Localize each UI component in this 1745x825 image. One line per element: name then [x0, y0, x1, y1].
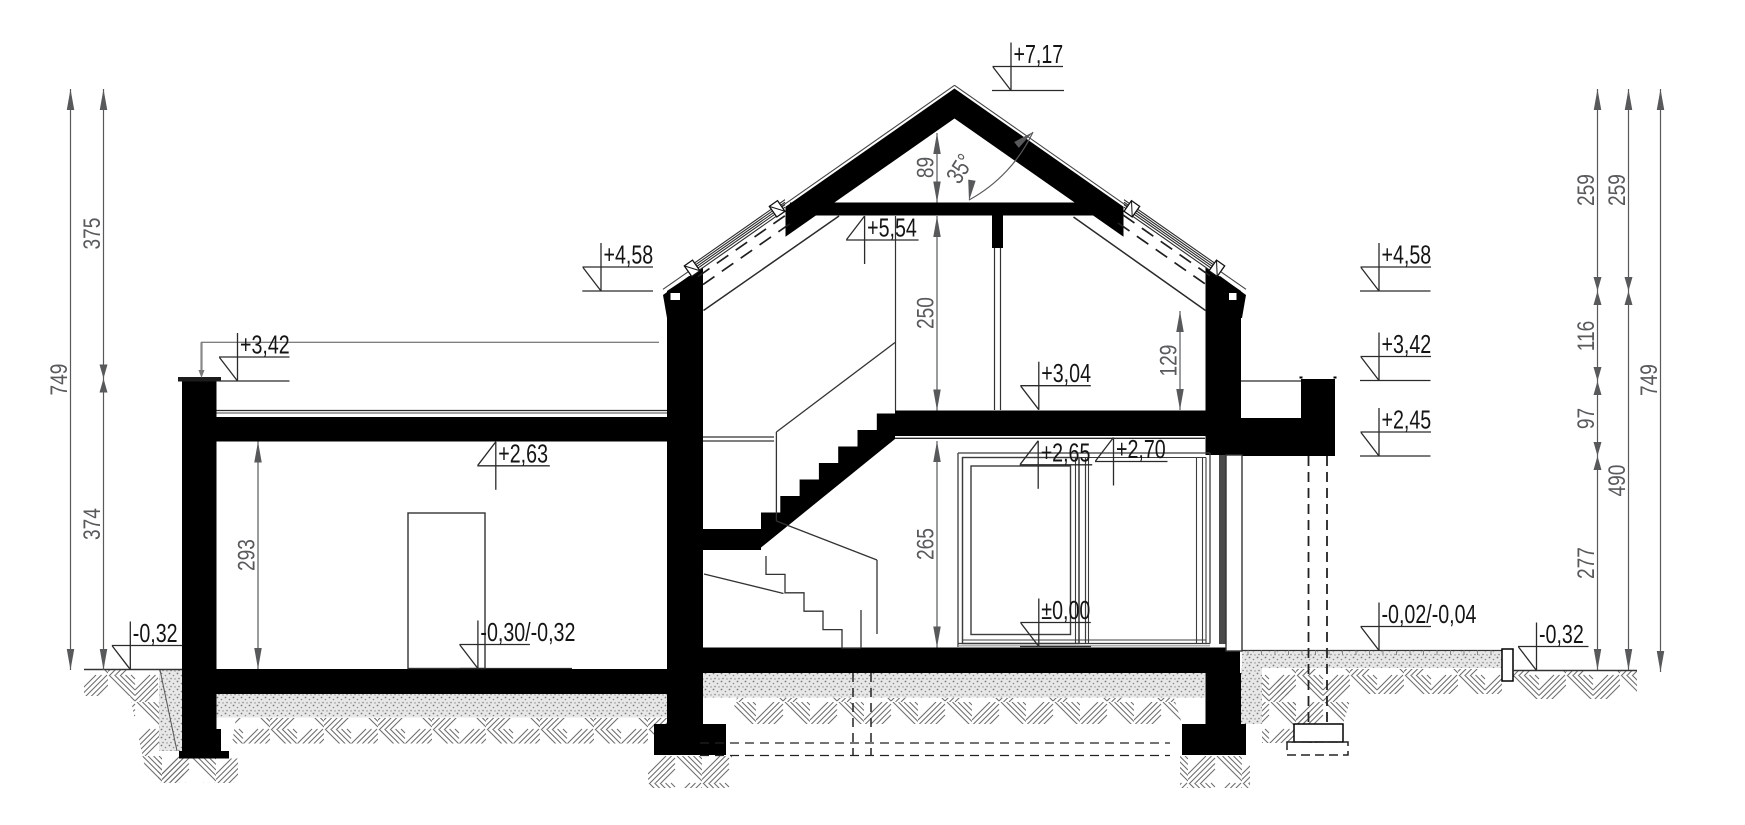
- svg-text:749: 749: [45, 364, 73, 396]
- svg-text:116: 116: [1572, 321, 1600, 351]
- svg-text:375: 375: [78, 218, 106, 250]
- svg-text:+2,65: +2,65: [1041, 438, 1091, 467]
- svg-text:259: 259: [1572, 174, 1600, 206]
- svg-text:97: 97: [1572, 408, 1600, 429]
- svg-text:89: 89: [911, 157, 939, 178]
- svg-text:+2,45: +2,45: [1382, 405, 1432, 434]
- svg-text:±0,00: ±0,00: [1041, 595, 1090, 624]
- svg-text:277: 277: [1572, 547, 1600, 579]
- svg-text:+3,42: +3,42: [1382, 329, 1432, 358]
- svg-text:-0,02/-0,04: -0,02/-0,04: [1382, 599, 1477, 628]
- svg-text:+2,70: +2,70: [1116, 434, 1166, 463]
- svg-text:-0,32: -0,32: [133, 618, 178, 647]
- svg-text:+4,58: +4,58: [604, 240, 654, 269]
- svg-text:129: 129: [1154, 345, 1182, 377]
- svg-text:749: 749: [1635, 364, 1663, 396]
- svg-text:-0,30/-0,32: -0,30/-0,32: [480, 617, 575, 646]
- svg-text:293: 293: [232, 539, 260, 571]
- svg-text:+4,58: +4,58: [1382, 240, 1432, 269]
- svg-text:265: 265: [911, 528, 939, 560]
- svg-text:250: 250: [911, 297, 939, 329]
- svg-text:+5,54: +5,54: [867, 213, 917, 242]
- svg-text:+7,17: +7,17: [1014, 39, 1064, 68]
- svg-text:+3,42: +3,42: [240, 330, 290, 359]
- svg-text:374: 374: [78, 508, 106, 540]
- svg-text:-0,32: -0,32: [1539, 619, 1584, 648]
- svg-text:259: 259: [1603, 174, 1631, 206]
- svg-text:490: 490: [1603, 465, 1631, 497]
- svg-text:+3,04: +3,04: [1041, 358, 1091, 387]
- svg-text:+2,63: +2,63: [498, 439, 548, 468]
